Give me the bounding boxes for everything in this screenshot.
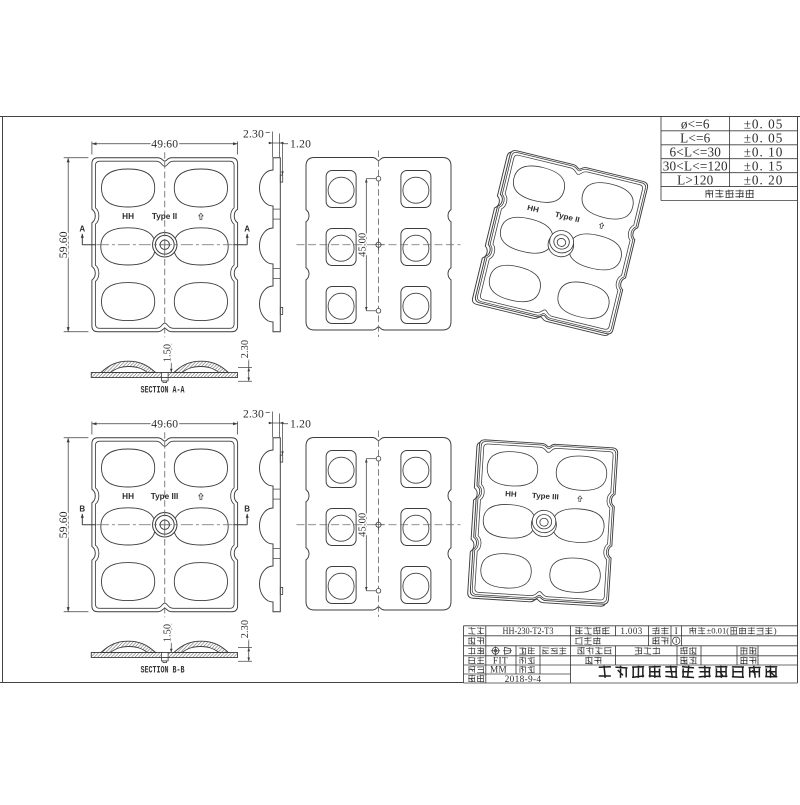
svg-text:±0. 05: ±0. 05: [744, 116, 784, 131]
svg-text:Type II: Type II: [152, 212, 177, 221]
svg-text:49.60: 49.60: [151, 417, 178, 430]
svg-text:1.20: 1.20: [290, 138, 311, 151]
svg-text:SECTION B-B: SECTION B-B: [141, 664, 185, 675]
svg-text:±0. 10: ±0. 10: [744, 144, 784, 159]
svg-text:HH: HH: [505, 489, 517, 498]
svg-text:2.30: 2.30: [240, 340, 251, 358]
svg-text:HH-230-T2-T3: HH-230-T2-T3: [503, 626, 554, 636]
svg-text:SECTION A-A: SECTION A-A: [141, 384, 185, 395]
svg-text:±0. 05: ±0. 05: [744, 130, 784, 145]
svg-text:Type III: Type III: [151, 492, 179, 501]
svg-text:2.30: 2.30: [240, 620, 251, 638]
svg-text:I: I: [675, 627, 678, 637]
svg-text:ø<=6: ø<=6: [681, 116, 710, 131]
svg-text:HH: HH: [122, 212, 134, 221]
svg-text:2018-9-4: 2018-9-4: [505, 675, 542, 685]
svg-text:45.00: 45.00: [358, 513, 369, 537]
svg-text:Type III: Type III: [532, 491, 559, 501]
svg-text:1.20: 1.20: [290, 418, 311, 431]
svg-text:1.003: 1.003: [620, 626, 642, 636]
svg-text:1.50: 1.50: [163, 344, 174, 362]
svg-text:±0. 15: ±0. 15: [744, 158, 784, 173]
svg-text:HH: HH: [122, 492, 134, 501]
svg-text:L<=6: L<=6: [680, 130, 711, 145]
svg-text:B: B: [79, 504, 85, 513]
svg-text:±0. 20: ±0. 20: [744, 172, 784, 187]
svg-text:A: A: [244, 224, 250, 233]
svg-text:45.00: 45.00: [358, 233, 369, 257]
svg-text:30<L<=120: 30<L<=120: [663, 158, 728, 173]
svg-text:2.30: 2.30: [243, 127, 264, 140]
svg-text:): ): [774, 626, 777, 636]
svg-text:1.50: 1.50: [163, 624, 174, 642]
svg-text:59.60: 59.60: [57, 231, 70, 258]
svg-text:59.60: 59.60: [57, 511, 70, 538]
svg-text:2.30: 2.30: [243, 407, 264, 420]
svg-text:MM: MM: [490, 665, 507, 675]
svg-text:49.60: 49.60: [151, 137, 178, 150]
svg-text:A: A: [79, 224, 85, 233]
svg-text:B: B: [244, 504, 250, 513]
svg-text:±0.01(: ±0.01(: [707, 626, 730, 636]
svg-text:6<L<=30: 6<L<=30: [670, 144, 722, 159]
svg-text:L>120: L>120: [677, 172, 713, 187]
